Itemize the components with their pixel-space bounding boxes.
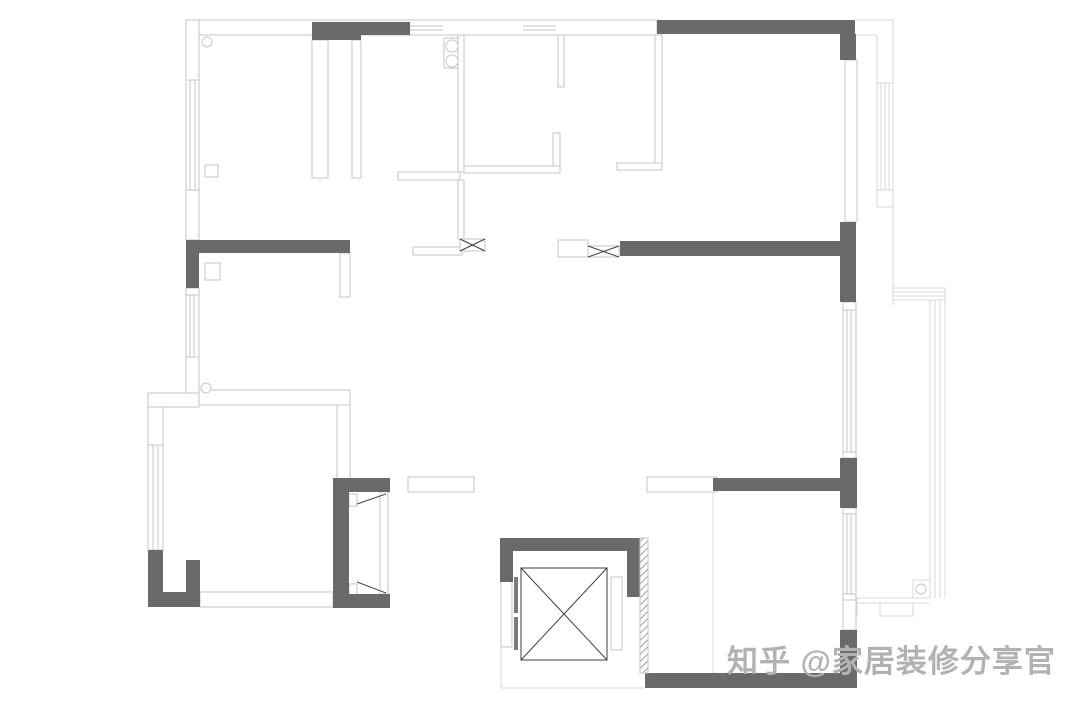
- ac-platform: [880, 603, 913, 616]
- load-bearing-wall: [840, 34, 856, 60]
- partition-wall: [312, 40, 328, 178]
- watermark: 知乎 @家居装修分享官: [727, 636, 1056, 681]
- stove-burner-circle: [446, 40, 458, 52]
- load-bearing-wall: [620, 241, 840, 256]
- entry-door-frame: [349, 494, 357, 506]
- exterior-wall: [186, 20, 199, 240]
- wall-notch: [205, 165, 218, 177]
- load-bearing-wall: [186, 560, 200, 592]
- exterior-wall: [845, 60, 857, 222]
- floor-plan-screenshot: 知乎 @家居装修分享官: [0, 0, 1080, 705]
- floor-drain-circle: [916, 584, 926, 594]
- elevator-door-guide: [514, 577, 518, 613]
- plumbing-stack-circle: [202, 37, 212, 47]
- door-opening-frame: [408, 477, 474, 492]
- elevator-shaft-wall: [500, 551, 513, 582]
- elevator-door-guide: [514, 617, 518, 650]
- entry-door-frame: [380, 492, 388, 594]
- exterior-wall: [843, 600, 856, 630]
- load-bearing-wall: [840, 222, 856, 302]
- load-bearing-wall: [333, 492, 349, 594]
- load-bearing-wall: [312, 22, 410, 35]
- exterior-wall: [148, 407, 163, 550]
- partition-wall: [352, 40, 361, 178]
- partition-wall: [337, 405, 350, 480]
- window-frame: [843, 508, 856, 600]
- load-bearing-wall: [148, 592, 200, 607]
- load-bearing-wall: [333, 478, 390, 492]
- partition-wall: [617, 163, 662, 170]
- wall-notch: [205, 263, 220, 280]
- elevator-guide-rail: [611, 577, 622, 650]
- exterior-wall: [148, 393, 199, 407]
- load-bearing-wall: [713, 478, 840, 491]
- exterior-wall: [187, 20, 657, 35]
- partition-wall: [464, 166, 560, 173]
- partition-wall: [458, 35, 464, 172]
- window-frame: [843, 302, 856, 458]
- flue-hatch: [640, 538, 648, 673]
- load-bearing-wall: [186, 253, 199, 288]
- plumbing-stack-circle: [201, 383, 211, 393]
- partition-wall: [398, 172, 460, 180]
- load-bearing-wall: [840, 458, 857, 508]
- partition-wall: [199, 390, 350, 405]
- load-bearing-wall: [657, 20, 855, 34]
- elevator-shaft-wall: [627, 551, 640, 597]
- elevator-guide-rail: [501, 580, 512, 647]
- exterior-wall: [186, 288, 199, 393]
- partition-wall: [413, 247, 462, 255]
- floor-plan-canvas: [0, 0, 1080, 705]
- partition-wall: [655, 35, 662, 170]
- floor-plan-layer: [148, 20, 945, 688]
- load-bearing-wall: [333, 594, 390, 608]
- exterior-wall: [200, 592, 333, 607]
- door-opening-frame: [647, 477, 717, 492]
- stove-burner-circle: [446, 55, 458, 67]
- partition-wall: [458, 180, 464, 239]
- load-bearing-wall: [186, 240, 350, 253]
- elevator-shaft-wall: [500, 538, 640, 551]
- load-bearing-wall: [312, 35, 361, 40]
- partition-wall: [558, 240, 588, 257]
- partition-wall: [340, 253, 350, 297]
- partition-wall: [558, 35, 564, 87]
